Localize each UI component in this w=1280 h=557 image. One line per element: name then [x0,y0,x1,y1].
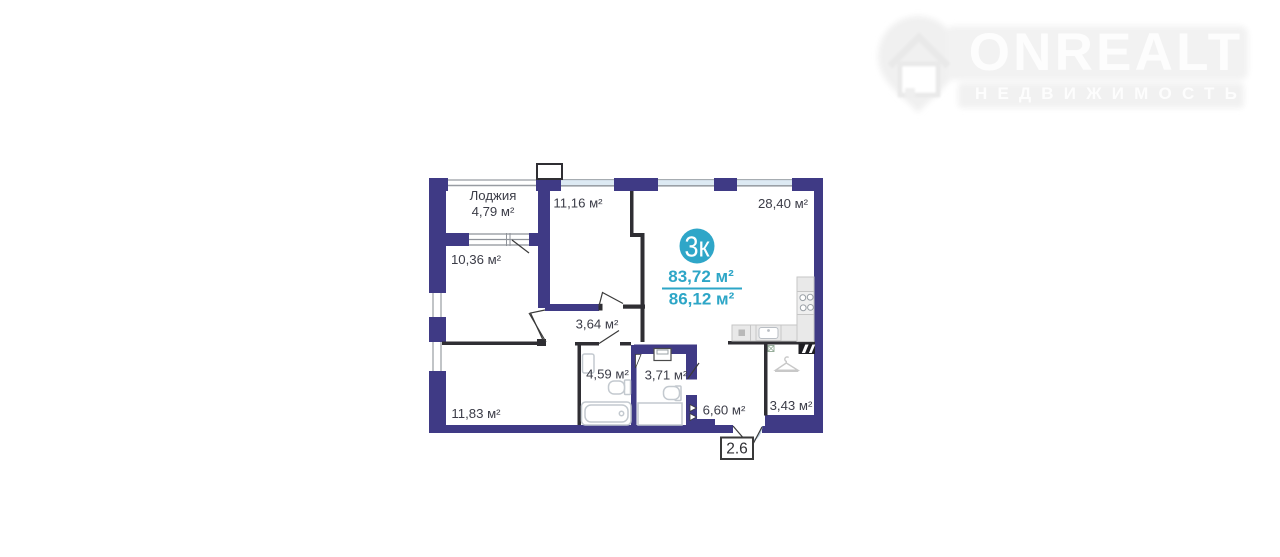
svg-text:10,36 м²: 10,36 м² [451,252,502,267]
svg-text:3,71 м²: 3,71 м² [645,368,688,383]
svg-text:28,40 м²: 28,40 м² [758,196,809,211]
svg-text:83,72 м²: 83,72 м² [668,267,734,286]
svg-text:ONREALT: ONREALT [969,23,1244,82]
svg-text:86,12 м²: 86,12 м² [669,290,735,309]
svg-text:НЕДВИЖИМОСТЬ: НЕДВИЖИМОСТЬ [975,84,1247,103]
svg-text:11,16 м²: 11,16 м² [553,196,603,211]
svg-text:3,43 м²: 3,43 м² [770,398,813,413]
svg-text:4,79 м²: 4,79 м² [472,204,515,219]
svg-text:4,59 м²: 4,59 м² [586,367,629,382]
svg-text:3к: 3к [685,232,710,264]
svg-text:2.6: 2.6 [726,441,748,458]
svg-text:3,64 м²: 3,64 м² [576,317,619,332]
svg-text:6,60 м²: 6,60 м² [703,403,746,418]
svg-text:11,83 м²: 11,83 м² [451,406,501,421]
svg-text:Лоджия: Лоджия [470,188,517,203]
